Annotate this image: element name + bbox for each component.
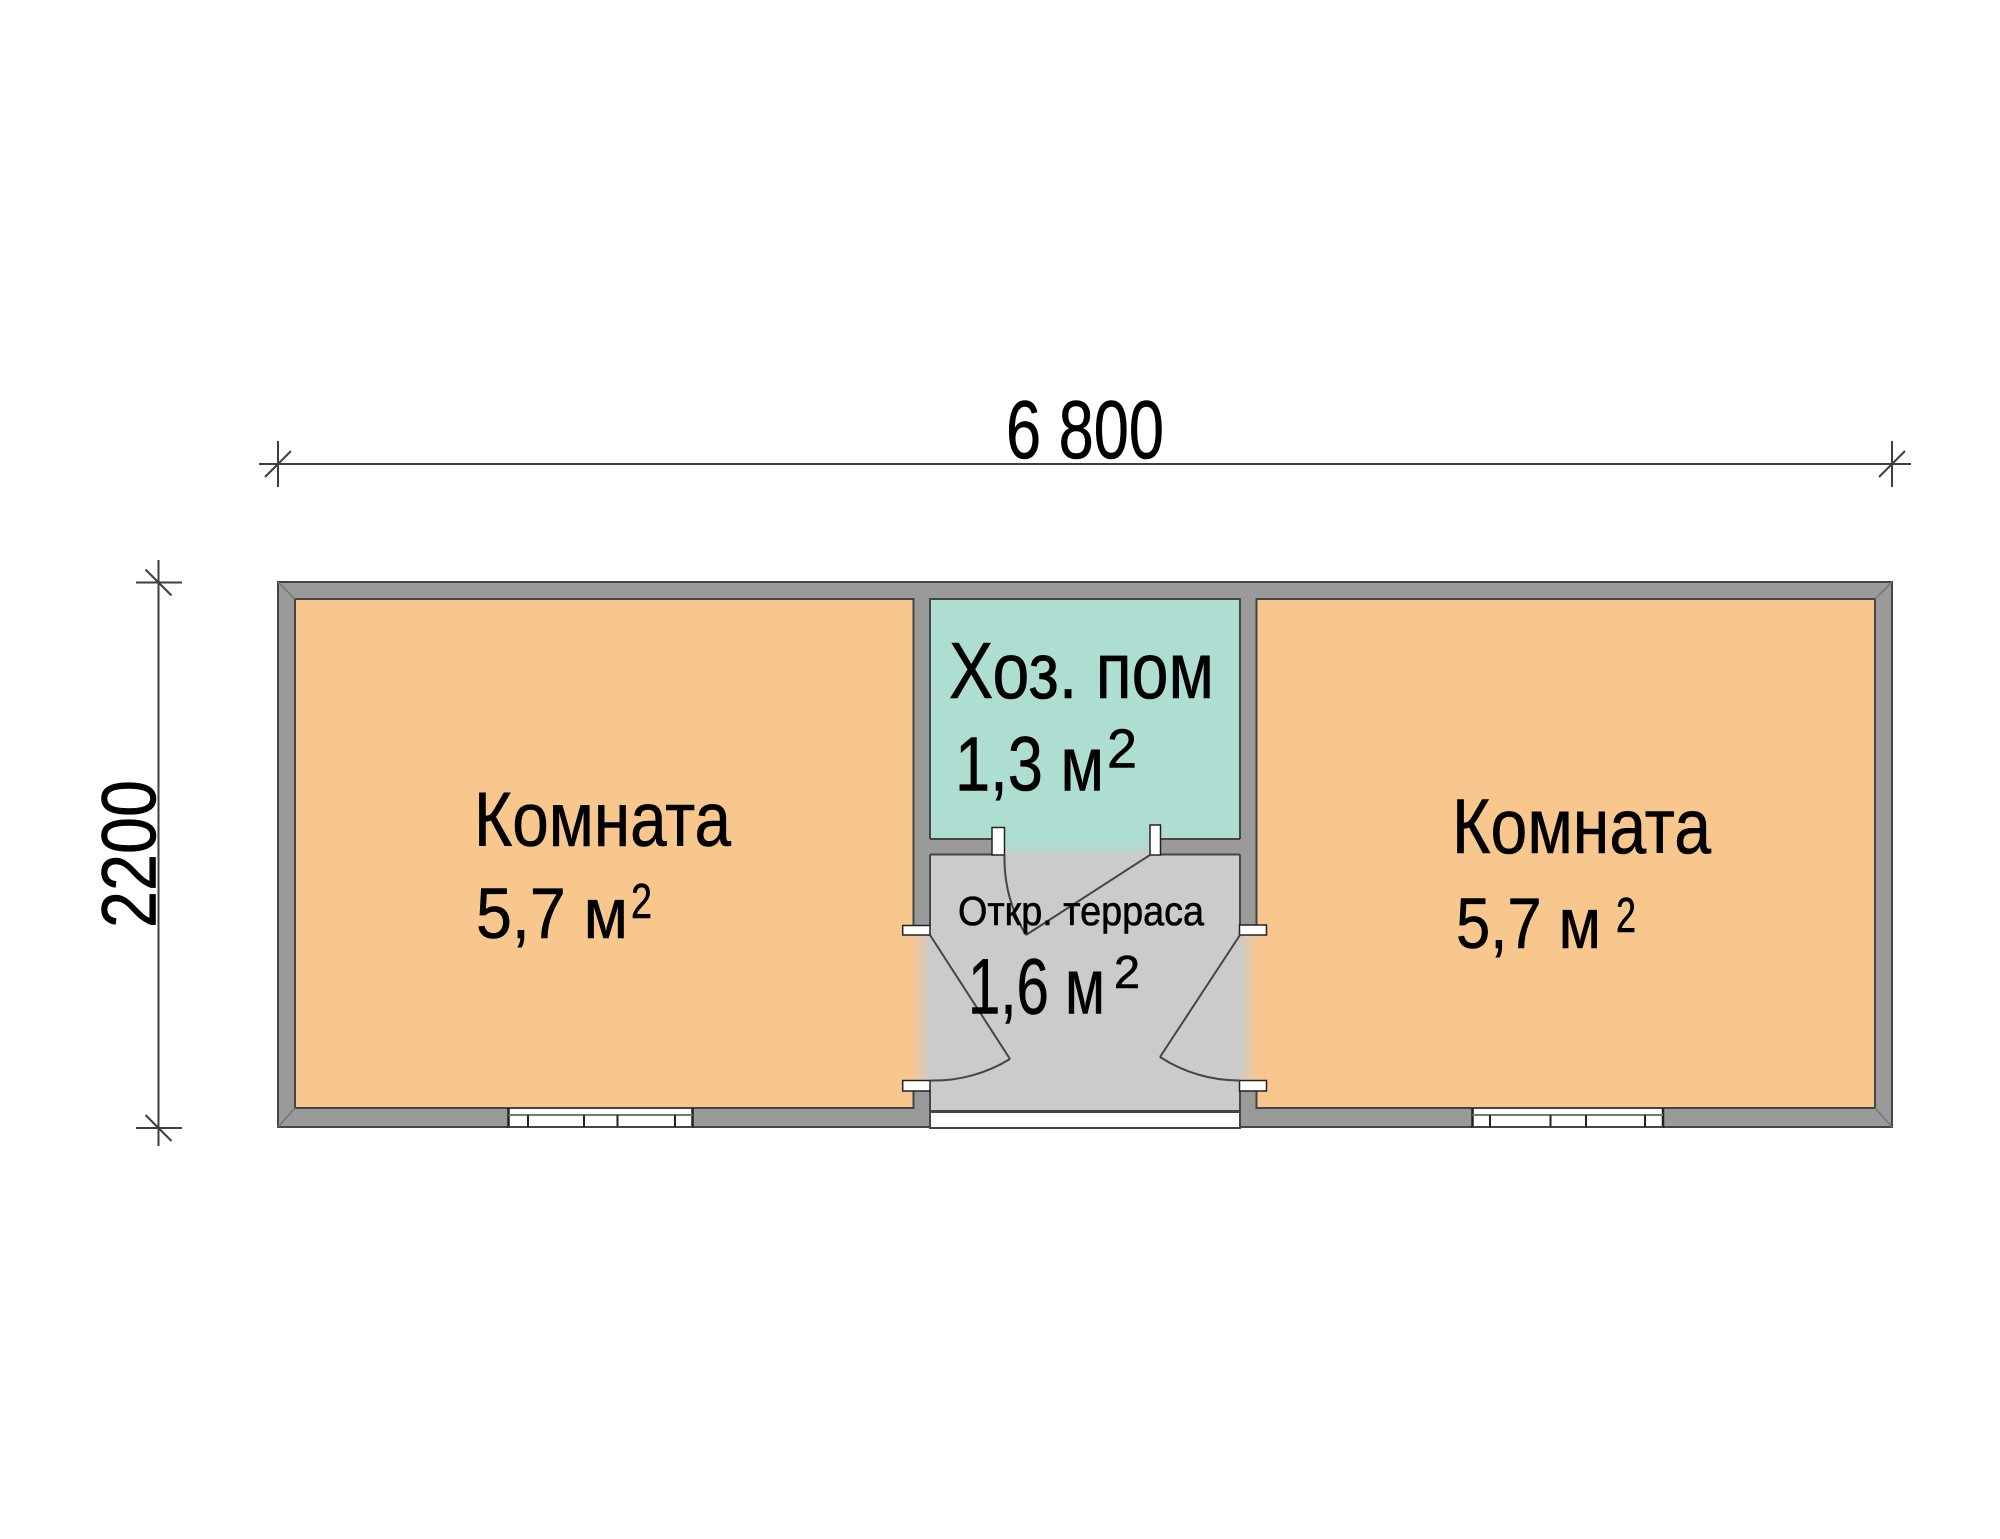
svg-text:2: 2 [1114, 946, 1140, 998]
svg-text:2: 2 [631, 875, 652, 929]
svg-text:1,6 м: 1,6 м [968, 942, 1105, 1031]
svg-text:Комната: Комната [1452, 782, 1712, 870]
svg-text:1,3 м: 1,3 м [955, 722, 1104, 808]
svg-text:2200: 2200 [87, 780, 173, 928]
svg-text:5,7 м: 5,7 м [1456, 885, 1601, 964]
svg-text:2: 2 [1616, 889, 1636, 943]
svg-text:Комната: Комната [474, 777, 731, 863]
svg-text:5,7 м: 5,7 м [476, 875, 628, 954]
svg-text:6 800: 6 800 [1006, 383, 1164, 476]
svg-text:2: 2 [1107, 718, 1137, 780]
svg-text:Откр. терраса: Откр. терраса [958, 888, 1204, 934]
svg-text:Хоз. пом: Хоз. пом [949, 626, 1214, 715]
